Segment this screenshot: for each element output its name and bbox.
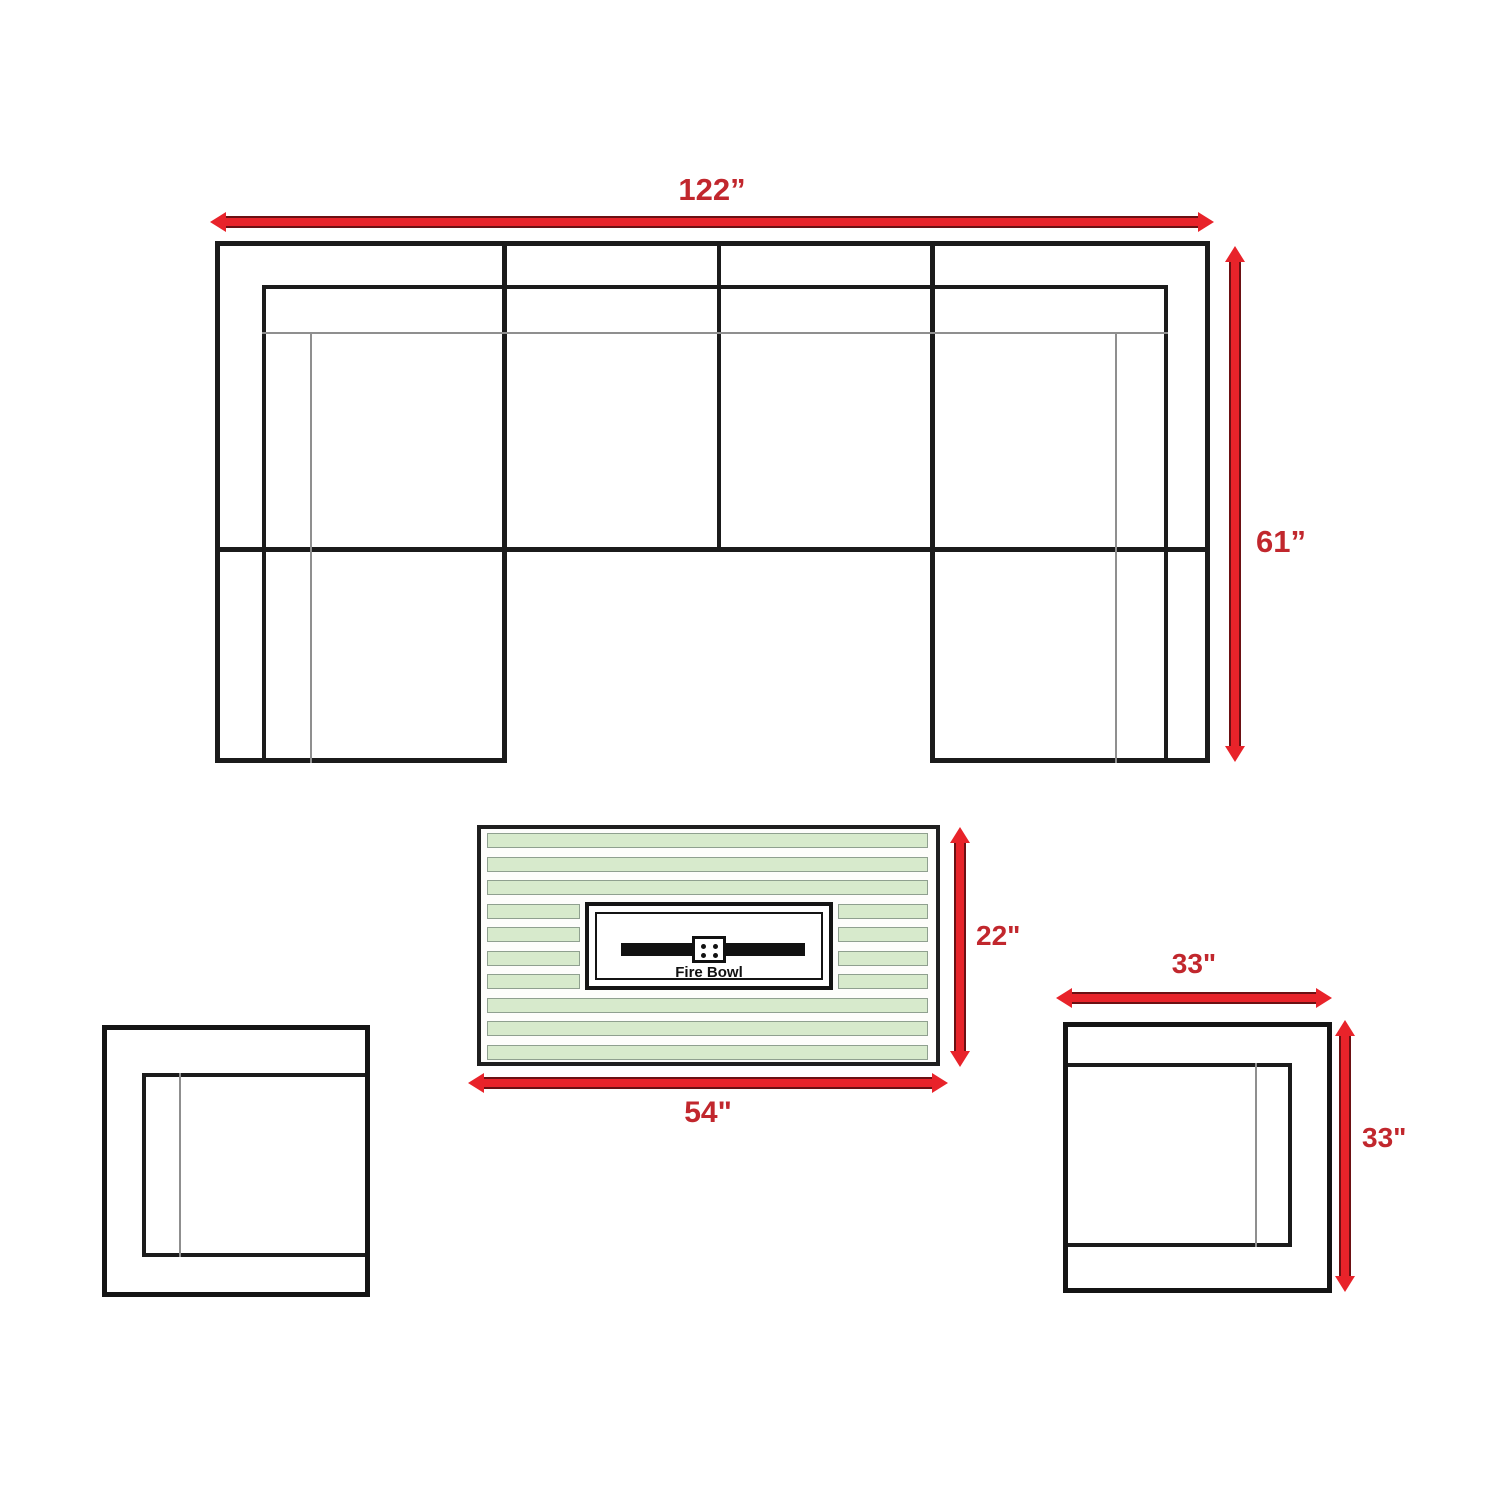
chair-seat-right-edge <box>1288 1063 1292 1247</box>
arrow-head-left <box>210 212 226 232</box>
chair-cushion-line <box>179 1073 181 1257</box>
chair-depth-label: 33" <box>1362 1124 1406 1152</box>
chair-cushion-line <box>1255 1063 1257 1247</box>
sofa-backrest-inner-edge <box>262 285 1168 289</box>
chair-seat-left-edge <box>142 1073 146 1257</box>
table-slat <box>487 880 928 895</box>
arrow-head-right <box>932 1073 948 1093</box>
arrow-head-left <box>1056 988 1072 1008</box>
chair-seat-top-edge <box>1068 1063 1292 1067</box>
corner-chair-right-top-view <box>1063 1022 1332 1293</box>
table-slat <box>838 927 928 942</box>
sofa-divider-line <box>930 241 935 763</box>
table-slat <box>487 998 928 1013</box>
table-width-label: 54" <box>468 1098 948 1128</box>
table-slat <box>487 1021 928 1036</box>
arrow-head-right <box>1198 212 1214 232</box>
arrow-bar <box>954 840 966 1054</box>
sofa-outer-top-edge <box>215 241 1210 246</box>
sofa-left-chaise-bottom-edge <box>215 758 507 763</box>
chair-width-arrow <box>1056 988 1332 1008</box>
arrow-head-right <box>1316 988 1332 1008</box>
fire-bowl-igniter <box>692 936 726 963</box>
table-slat <box>487 904 580 919</box>
arrow-head-bottom <box>1335 1276 1355 1292</box>
sofa-cushion-line <box>310 332 312 763</box>
sofa-outer-left-edge <box>215 241 220 763</box>
furniture-dimensions-diagram: 122” 61” <box>0 0 1500 1500</box>
fire-pit-table-top-view: Fire Bowl <box>477 825 940 1066</box>
arrow-head-top <box>950 827 970 843</box>
table-slat <box>838 974 928 989</box>
fire-bowl-label: Fire Bowl <box>589 964 829 981</box>
sofa-width-label: 122” <box>212 174 1212 205</box>
sofa-depth-arrow <box>1225 246 1245 762</box>
arrow-bar <box>1339 1033 1351 1279</box>
sofa-outer-right-edge <box>1205 241 1210 763</box>
sofa-seat-front-line <box>215 547 1210 552</box>
fire-bowl-box: Fire Bowl <box>585 902 833 990</box>
sofa-cushion-line <box>1115 332 1117 763</box>
arrow-head-top <box>1225 246 1245 262</box>
arrow-bar <box>223 216 1201 228</box>
chair-width-label: 33" <box>1056 950 1332 978</box>
table-slat <box>487 833 928 848</box>
chair-seat-bottom-edge <box>1068 1243 1292 1247</box>
table-depth-arrow <box>950 827 970 1067</box>
sofa-divider-line <box>502 241 507 763</box>
chair-seat-top-edge <box>142 1073 365 1077</box>
sofa-cushion-line <box>262 332 1168 334</box>
igniter-dot <box>713 953 718 958</box>
table-slat <box>487 974 580 989</box>
sofa-right-chaise-bottom-edge <box>930 758 1210 763</box>
arrow-head-top <box>1335 1020 1355 1036</box>
chair-seat-bottom-edge <box>142 1253 365 1257</box>
igniter-dot <box>701 953 706 958</box>
table-slat <box>487 927 580 942</box>
sofa-width-arrow <box>210 212 1214 232</box>
table-slat <box>487 951 580 966</box>
sofa-right-arm-inner-edge <box>1164 285 1168 763</box>
arrow-bar <box>481 1077 935 1089</box>
sofa-left-arm-inner-edge <box>262 285 266 763</box>
arrow-head-left <box>468 1073 484 1093</box>
arrow-head-bottom <box>1225 746 1245 762</box>
table-slat <box>487 1045 928 1060</box>
table-depth-label: 22" <box>976 922 1020 950</box>
corner-chair-left-top-view <box>102 1025 370 1297</box>
arrow-bar <box>1229 259 1241 749</box>
table-slat <box>487 857 928 872</box>
sofa-depth-label: 61” <box>1256 526 1306 557</box>
igniter-dot <box>713 944 718 949</box>
table-slat <box>838 904 928 919</box>
igniter-dot <box>701 944 706 949</box>
table-slat <box>838 951 928 966</box>
sectional-sofa-top-view <box>215 241 1210 763</box>
chair-depth-arrow <box>1335 1020 1355 1292</box>
arrow-head-bottom <box>950 1051 970 1067</box>
table-width-arrow <box>468 1073 948 1093</box>
arrow-bar <box>1069 992 1319 1004</box>
